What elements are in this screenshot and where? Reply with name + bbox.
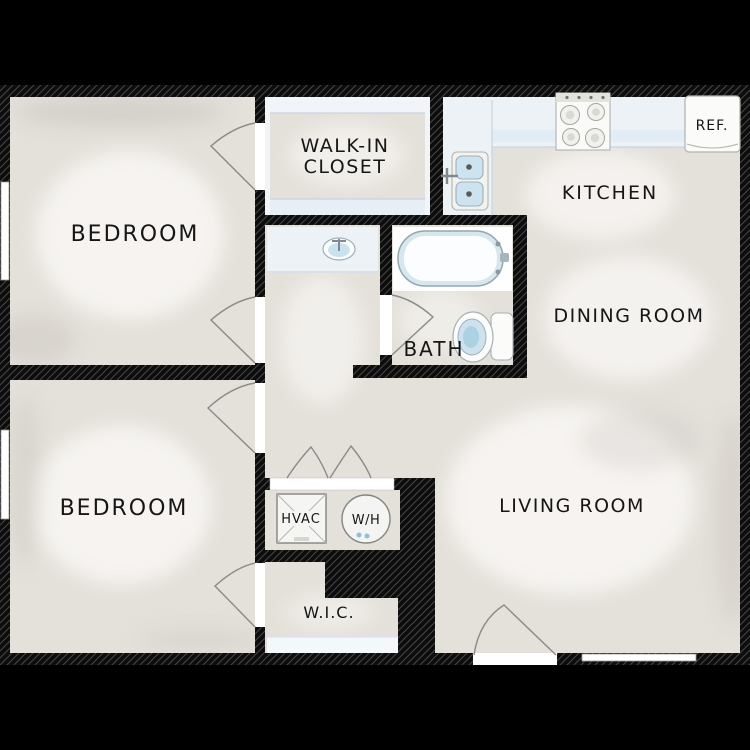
door-opening-bedroom-top (255, 297, 265, 363)
door-opening-bedroom-bottom (255, 383, 265, 453)
bathtub (393, 227, 512, 291)
refrigerator-label: REF. (696, 118, 729, 134)
kitchen-label: KITCHEN (562, 182, 658, 204)
bath-label: BATH (403, 337, 464, 361)
door-opening-wic (255, 563, 265, 627)
floor-plan-svg: REF. HVAC W/H (0, 0, 750, 750)
window-bedroom-bottom (1, 430, 9, 519)
refrigerator: REF. (685, 96, 740, 152)
bedroom-bottom-label: BEDROOM (60, 496, 189, 521)
bedroom-top-label: BEDROOM (71, 222, 200, 247)
door-opening-bath (380, 295, 392, 355)
vanity-sink (267, 227, 378, 273)
entry-door-opening (473, 653, 557, 665)
stove (556, 93, 610, 150)
wic-label: W.I.C. (303, 603, 354, 622)
door-opening-closet (255, 123, 265, 190)
hvac-closet-opening (270, 478, 394, 490)
hvac-label: HVAC (281, 512, 321, 527)
walk-in-closet-label-line1: WALK-IN (301, 135, 390, 157)
wic-shelf (267, 637, 398, 653)
water-heater-label: W/H (352, 513, 381, 528)
window-bedroom-top (1, 182, 9, 280)
floor-plan-image: REF. HVAC W/H (0, 0, 750, 750)
dining-room-label: DINING ROOM (553, 305, 704, 327)
water-heater: W/H (342, 495, 390, 543)
hvac-unit: HVAC (277, 494, 326, 543)
walk-in-closet-label-line2: CLOSET (304, 156, 387, 178)
living-room-label: LIVING ROOM (499, 495, 645, 517)
window-living-room (582, 654, 696, 661)
